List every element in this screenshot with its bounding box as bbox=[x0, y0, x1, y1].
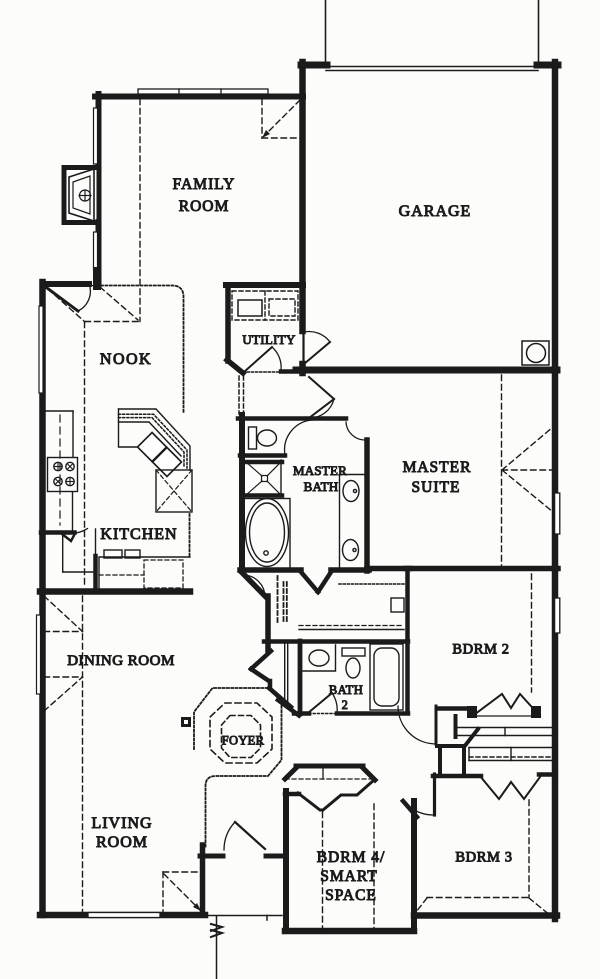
svg-text:BDRM 4/: BDRM 4/ bbox=[317, 849, 386, 866]
svg-text:GARAGE: GARAGE bbox=[399, 203, 472, 220]
svg-text:MASTER: MASTER bbox=[403, 459, 472, 476]
svg-text:ROOM: ROOM bbox=[179, 198, 230, 215]
svg-text:2: 2 bbox=[342, 698, 349, 712]
svg-text:ROOM: ROOM bbox=[96, 834, 148, 851]
svg-text:SMART: SMART bbox=[320, 868, 377, 885]
svg-text:BDRM 2: BDRM 2 bbox=[452, 642, 509, 658]
svg-text:BATH: BATH bbox=[304, 479, 339, 494]
svg-text:KITCHEN: KITCHEN bbox=[100, 526, 177, 543]
svg-text:FOYER: FOYER bbox=[222, 734, 265, 748]
svg-text:FAMILY: FAMILY bbox=[173, 176, 236, 193]
svg-text:NOOK: NOOK bbox=[100, 351, 152, 368]
svg-text:BATH: BATH bbox=[329, 683, 363, 697]
svg-text:SUITE: SUITE bbox=[412, 479, 461, 496]
svg-text:DINING ROOM: DINING ROOM bbox=[67, 653, 175, 669]
svg-text:LIVING: LIVING bbox=[91, 815, 152, 832]
svg-text:UTILITY: UTILITY bbox=[242, 332, 296, 347]
svg-text:BDRM 3: BDRM 3 bbox=[455, 850, 512, 866]
svg-text:SPACE: SPACE bbox=[325, 887, 377, 904]
